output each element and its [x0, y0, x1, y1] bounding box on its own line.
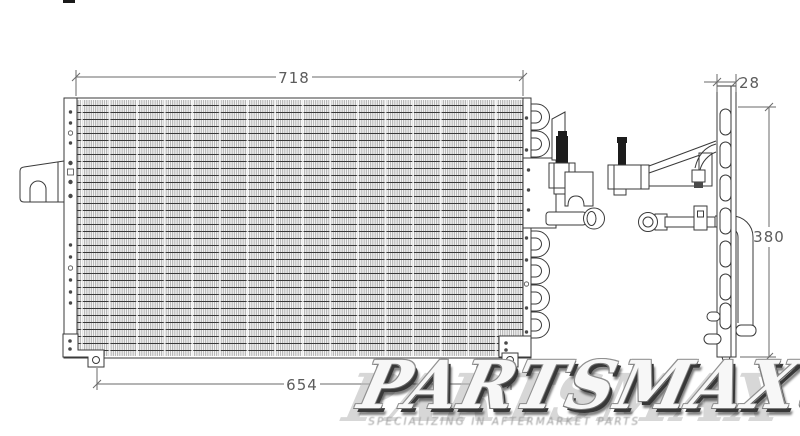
dim-label-718: 718	[278, 69, 310, 87]
dimension-mount-span: 654	[93, 368, 515, 394]
condenser-drawing-page: 718 28 380 654 PARTSMAX PARTSMAX® SPECIA…	[0, 0, 800, 436]
left-mounting-bracket	[20, 161, 64, 202]
lower-tube-assembly	[639, 206, 757, 336]
dim-label-654: 654	[286, 376, 318, 394]
condenser-core	[64, 98, 531, 358]
dimension-core-height: 380	[738, 103, 785, 361]
dimension-core-width: 718	[72, 69, 527, 96]
dim-label-28: 28	[739, 74, 760, 92]
bottom-right-mount	[499, 336, 531, 367]
dim-label-380: 380	[753, 228, 785, 246]
top-edge-mark	[63, 0, 75, 3]
fitting-port-line	[608, 137, 716, 195]
condenser-diagram: 718 28 380 654	[0, 0, 800, 436]
